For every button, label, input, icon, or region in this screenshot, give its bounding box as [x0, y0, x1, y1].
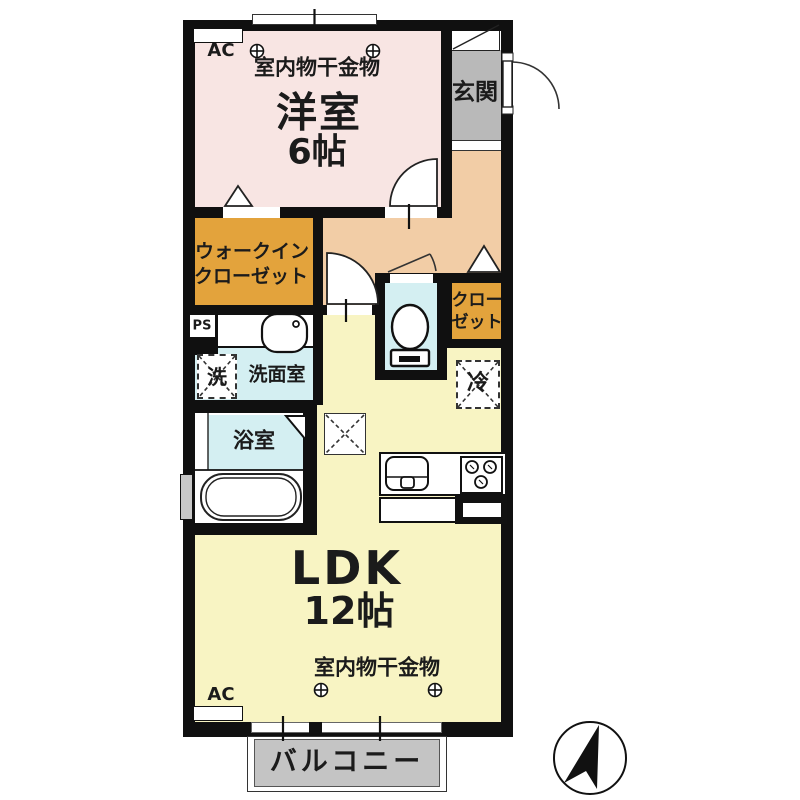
walk-in-closet-floor: [195, 218, 315, 308]
label-washroom: 洗面室: [248, 366, 305, 385]
closet-wall-south: [443, 339, 502, 348]
window-bottom-divider: [309, 722, 322, 733]
label-western-size: 6帖: [287, 136, 346, 171]
toilet-door-opening: [390, 274, 433, 283]
wic-door-opening: [223, 207, 280, 218]
label-pipe-space: PS: [193, 320, 212, 333]
window-bottom: [251, 722, 442, 733]
pillar-hatch-box: [324, 413, 366, 455]
label-balcony: バルコニー: [270, 749, 424, 776]
wall-right: [501, 20, 513, 737]
label-closet-line1: クロー: [452, 293, 503, 310]
window-bath: [180, 474, 193, 520]
closet-wall-west: [443, 273, 452, 348]
label-entrance: 玄関: [452, 82, 498, 105]
label-ac-bottom: AC: [207, 686, 234, 704]
western-door-opening: [385, 207, 437, 218]
entrance-step: [452, 140, 502, 151]
wall-left: [183, 20, 195, 737]
ac-box-bottom: [193, 706, 243, 721]
wall-entrance-west: [441, 20, 452, 218]
floor-plan: 室内物干金物 洋室 6帖 玄関 AC ウォークイン クローゼット クロー ゼット…: [0, 0, 800, 800]
label-wic-line1: ウォークイン: [195, 243, 309, 262]
label-wic-line2: クローゼット: [194, 268, 308, 287]
label-fridge: 冷: [467, 373, 489, 395]
hall-door-opening: [327, 305, 372, 315]
window-top: [252, 14, 377, 25]
kitchen-counter: [379, 452, 507, 496]
label-hanger-top: 室内物干金物: [254, 58, 380, 79]
label-ldk-size: 12帖: [304, 592, 395, 630]
label-ac-top: AC: [207, 42, 234, 60]
label-washer: 洗: [207, 367, 227, 387]
kitchen-cabinet-white: [379, 497, 457, 523]
label-bathroom: 浴室: [233, 431, 275, 452]
vanity-counter: [218, 315, 313, 348]
label-western-room: 洋室: [276, 93, 362, 134]
label-hanger-bottom: 室内物干金物: [314, 658, 440, 679]
north-arrow-icon: [554, 722, 626, 794]
label-ldk: LDK: [291, 545, 403, 591]
kitchen-cabinet-slot: [463, 503, 501, 517]
toilet-floor: [385, 283, 437, 370]
label-closet-line2: ゼット: [452, 315, 503, 332]
